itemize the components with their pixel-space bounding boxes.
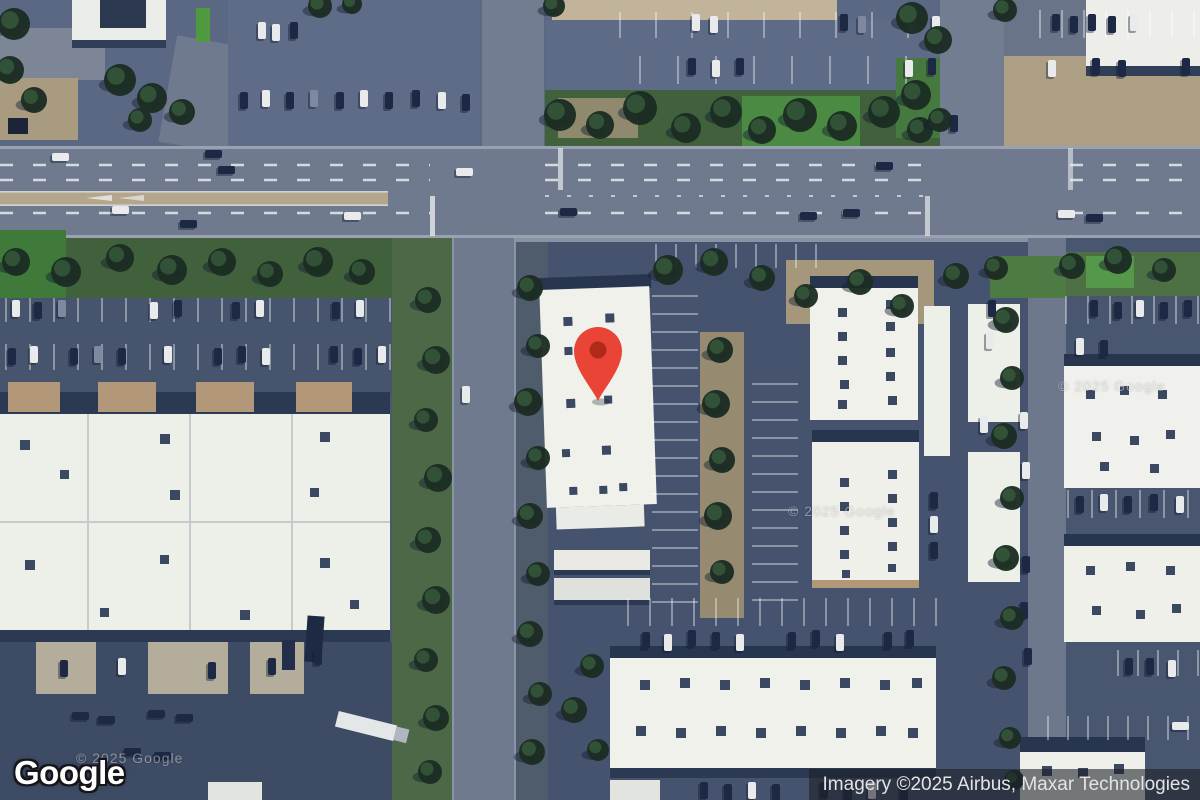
west-industrial-block — [0, 230, 452, 800]
google-logo[interactable]: Google — [14, 754, 125, 792]
map-viewport[interactable]: © 2025 Google © 2025 Google © 2025 Googl… — [0, 0, 1200, 800]
imagery-attribution: Imagery ©2025 Airbus, Maxar Technologies — [809, 769, 1200, 800]
satellite-map — [0, 0, 1200, 800]
imagery-attribution-text: Imagery ©2025 Airbus, Maxar Technologies — [823, 774, 1190, 795]
